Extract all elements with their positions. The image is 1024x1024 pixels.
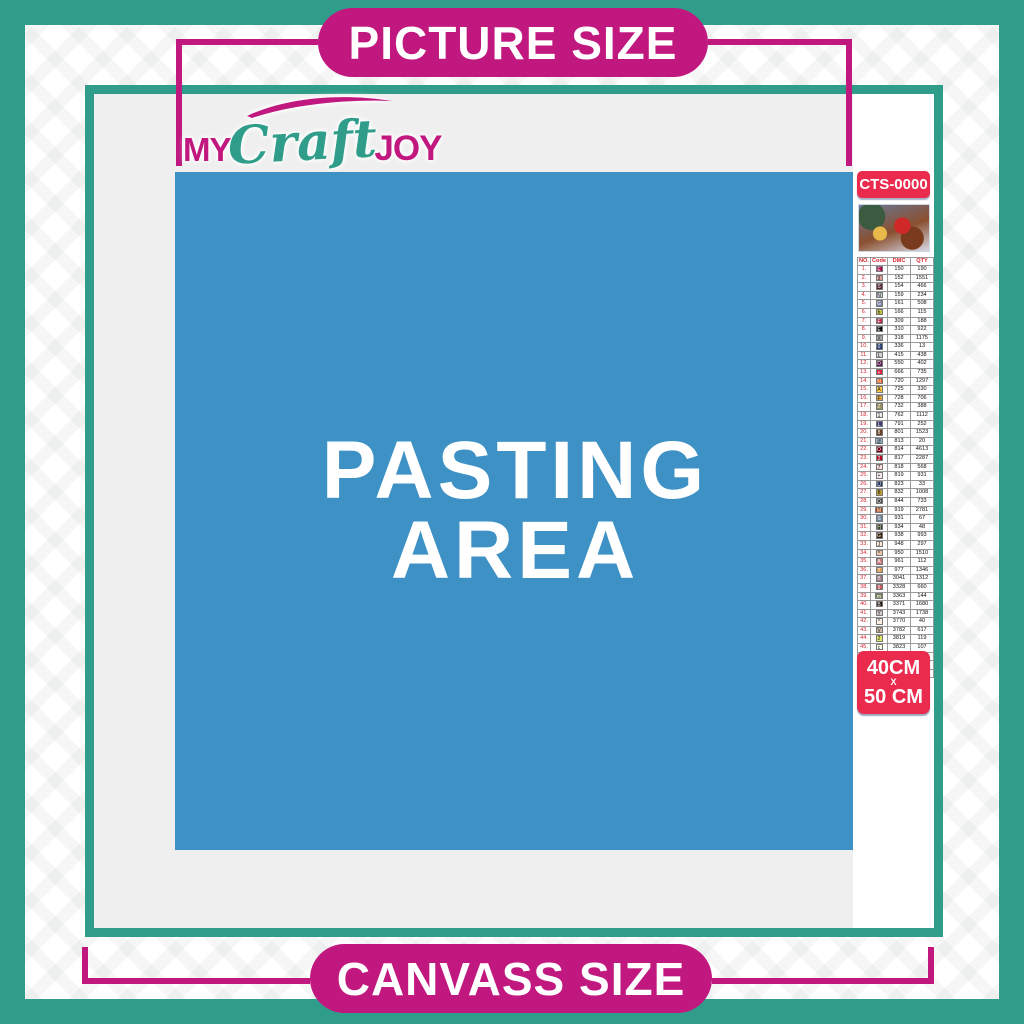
row-symbol-cell: @ bbox=[871, 437, 888, 446]
symbol-chip: B bbox=[876, 601, 883, 607]
row-number: 41. bbox=[858, 609, 871, 618]
row-symbol-cell: 0 bbox=[871, 343, 888, 352]
row-quantity: 115 bbox=[911, 308, 934, 317]
table-row: 32. G 938 993 bbox=[858, 532, 934, 541]
symbol-chip: B bbox=[876, 575, 883, 581]
table-row: 35. A 961 112 bbox=[858, 558, 934, 567]
row-number: 37. bbox=[858, 575, 871, 584]
table-row: 16. F 728 706 bbox=[858, 394, 934, 403]
header-code: Code bbox=[871, 258, 888, 266]
row-dmc-code: 950 bbox=[888, 549, 911, 558]
row-dmc-code: 3328 bbox=[888, 583, 911, 592]
table-header-row: NO. Code DMC QTY bbox=[858, 258, 934, 266]
row-quantity: 733 bbox=[911, 497, 934, 506]
row-dmc-code: 732 bbox=[888, 403, 911, 412]
row-quantity: 617 bbox=[911, 626, 934, 635]
size-width: 40CM bbox=[867, 658, 920, 678]
canvass-size-banner: CANVASS SIZE bbox=[310, 944, 712, 1013]
table-row: 27. 8 832 1008 bbox=[858, 489, 934, 498]
row-number: 5. bbox=[858, 300, 871, 309]
row-number: 14. bbox=[858, 377, 871, 386]
table-row: 8. E 310 922 bbox=[858, 326, 934, 335]
table-row: 10. 0 336 13 bbox=[858, 343, 934, 352]
table-row: 25. + 819 931 bbox=[858, 472, 934, 481]
symbol-chip: 2 bbox=[876, 455, 883, 461]
row-symbol-cell: 8 bbox=[871, 489, 888, 498]
row-symbol-cell: L bbox=[871, 420, 888, 429]
row-number: 39. bbox=[858, 592, 871, 601]
row-quantity: 1112 bbox=[911, 412, 934, 421]
row-quantity: 1297 bbox=[911, 377, 934, 386]
brand-logo: MY Craft JOY bbox=[183, 96, 398, 170]
row-number: 33. bbox=[858, 540, 871, 549]
size-height: 50 CM bbox=[864, 687, 923, 707]
row-dmc-code: 3770 bbox=[888, 618, 911, 627]
row-dmc-code: 948 bbox=[888, 540, 911, 549]
bottom-left-bracket-horizontal bbox=[82, 978, 310, 984]
row-quantity: 48 bbox=[911, 523, 934, 532]
symbol-chip: D bbox=[876, 360, 883, 366]
header-qty: QTY bbox=[911, 258, 934, 266]
row-dmc-code: 725 bbox=[888, 386, 911, 395]
table-row: 43. V 3782 617 bbox=[858, 626, 934, 635]
row-dmc-code: 3743 bbox=[888, 609, 911, 618]
table-row: 41. Y 3743 1738 bbox=[858, 609, 934, 618]
row-number: 44. bbox=[858, 635, 871, 644]
row-symbol-cell: 1 bbox=[871, 412, 888, 421]
symbol-chip: ^ bbox=[876, 618, 883, 624]
symbol-chip: m bbox=[875, 593, 882, 599]
row-symbol-cell: G bbox=[871, 532, 888, 541]
canvas-size-badge: 40CM X 50 CM bbox=[857, 651, 930, 714]
row-dmc-code: 152 bbox=[888, 274, 911, 283]
sku-badge: CTS-0000 bbox=[857, 171, 930, 198]
row-dmc-code: 934 bbox=[888, 523, 911, 532]
row-quantity: 20 bbox=[911, 437, 934, 446]
row-quantity: 1346 bbox=[911, 566, 934, 575]
symbol-chip: + bbox=[876, 472, 883, 478]
symbol-chip: U bbox=[876, 481, 883, 487]
symbol-chip: N bbox=[876, 378, 883, 384]
picture-size-label: PICTURE SIZE bbox=[349, 16, 678, 70]
row-symbol-cell: m bbox=[871, 592, 888, 601]
row-quantity: 388 bbox=[911, 403, 934, 412]
table-row: 7. F 309 188 bbox=[858, 317, 934, 326]
row-quantity: 1510 bbox=[911, 549, 934, 558]
symbol-chip: F bbox=[876, 318, 883, 324]
row-quantity: 922 bbox=[911, 326, 934, 335]
row-symbol-cell: ^ bbox=[871, 618, 888, 627]
row-symbol-cell: H bbox=[871, 523, 888, 532]
symbol-chip: E bbox=[876, 326, 883, 332]
row-number: 3. bbox=[858, 283, 871, 292]
table-row: 42. ^ 3770 40 bbox=[858, 618, 934, 627]
symbol-chip: A bbox=[876, 386, 883, 392]
row-quantity: 1008 bbox=[911, 489, 934, 498]
row-quantity: 660 bbox=[911, 583, 934, 592]
row-dmc-code: 762 bbox=[888, 412, 911, 421]
row-symbol-cell: V bbox=[871, 626, 888, 635]
table-row: 12. D 550 402 bbox=[858, 360, 934, 369]
row-symbol-cell: F bbox=[871, 394, 888, 403]
table-row: 18. 1 762 1112 bbox=[858, 412, 934, 421]
row-symbol-cell: + bbox=[871, 369, 888, 378]
table-row: 5. G 161 508 bbox=[858, 300, 934, 309]
row-dmc-code: 666 bbox=[888, 369, 911, 378]
table-row: 23. 2 817 2287 bbox=[858, 455, 934, 464]
row-quantity: 931 bbox=[911, 472, 934, 481]
row-symbol-cell: + bbox=[871, 472, 888, 481]
row-number: 6. bbox=[858, 308, 871, 317]
row-dmc-code: 161 bbox=[888, 300, 911, 309]
row-quantity: 67 bbox=[911, 515, 934, 524]
row-symbol-cell: N bbox=[871, 377, 888, 386]
row-number: 29. bbox=[858, 506, 871, 515]
symbol-chip: @ bbox=[875, 438, 883, 444]
symbol-chip: 8 bbox=[876, 489, 883, 495]
row-symbol-cell: J bbox=[871, 540, 888, 549]
table-row: 11. L 415 438 bbox=[858, 351, 934, 360]
row-number: 16. bbox=[858, 394, 871, 403]
table-row: 1. E 150 190 bbox=[858, 265, 934, 274]
symbol-chip: X bbox=[876, 335, 883, 341]
row-number: 31. bbox=[858, 523, 871, 532]
row-symbol-cell: 2 bbox=[871, 635, 888, 644]
row-dmc-code: 844 bbox=[888, 497, 911, 506]
symbol-chip: Y bbox=[876, 610, 883, 616]
row-symbol-cell: E bbox=[871, 326, 888, 335]
product-thumbnail-image bbox=[858, 204, 930, 252]
row-number: 9. bbox=[858, 334, 871, 343]
row-number: 35. bbox=[858, 558, 871, 567]
row-dmc-code: 159 bbox=[888, 291, 911, 300]
symbol-chip: O bbox=[876, 498, 883, 504]
row-number: 38. bbox=[858, 583, 871, 592]
row-number: 30. bbox=[858, 515, 871, 524]
table-row: 9. X 318 1175 bbox=[858, 334, 934, 343]
table-row: 28. O 844 733 bbox=[858, 497, 934, 506]
row-symbol-cell: D bbox=[871, 360, 888, 369]
row-quantity: 706 bbox=[911, 394, 934, 403]
symbol-chip: * bbox=[876, 550, 883, 556]
row-quantity: 1551 bbox=[911, 274, 934, 283]
row-dmc-code: 977 bbox=[888, 566, 911, 575]
row-dmc-code: 813 bbox=[888, 437, 911, 446]
row-symbol-cell: M bbox=[871, 506, 888, 515]
row-dmc-code: 3782 bbox=[888, 626, 911, 635]
symbol-chip: T bbox=[876, 567, 883, 573]
row-dmc-code: 818 bbox=[888, 463, 911, 472]
symbol-chip: F bbox=[876, 395, 883, 401]
row-number: 23. bbox=[858, 455, 871, 464]
logo-text-craft: Craft bbox=[227, 119, 378, 168]
row-symbol-cell: O bbox=[871, 497, 888, 506]
row-quantity: 144 bbox=[911, 592, 934, 601]
row-number: 8. bbox=[858, 326, 871, 335]
table-row: 36. T 977 1346 bbox=[858, 566, 934, 575]
row-number: 42. bbox=[858, 618, 871, 627]
row-quantity: 438 bbox=[911, 351, 934, 360]
row-quantity: 1680 bbox=[911, 601, 934, 610]
row-dmc-code: 550 bbox=[888, 360, 911, 369]
row-quantity: 4613 bbox=[911, 446, 934, 455]
row-dmc-code: 961 bbox=[888, 558, 911, 567]
row-number: 10. bbox=[858, 343, 871, 352]
symbol-chip: H bbox=[876, 524, 883, 530]
row-number: 26. bbox=[858, 480, 871, 489]
table-row: 33. J 948 297 bbox=[858, 540, 934, 549]
header-dmc: DMC bbox=[888, 258, 911, 266]
row-symbol-cell: S bbox=[871, 515, 888, 524]
row-quantity: 1175 bbox=[911, 334, 934, 343]
table-row: 20. 8 801 1523 bbox=[858, 429, 934, 438]
symbol-chip: S bbox=[876, 283, 883, 289]
row-symbol-cell: A bbox=[871, 558, 888, 567]
row-number: 28. bbox=[858, 497, 871, 506]
table-row: 4. N 159 234 bbox=[858, 291, 934, 300]
table-row: 24. 7 818 568 bbox=[858, 463, 934, 472]
symbol-chip: L bbox=[876, 421, 883, 427]
row-quantity: 252 bbox=[911, 420, 934, 429]
row-symbol-cell: L bbox=[871, 351, 888, 360]
top-right-bracket-horizontal bbox=[708, 39, 852, 45]
row-quantity: 2287 bbox=[911, 455, 934, 464]
table-row: 39. m 3363 144 bbox=[858, 592, 934, 601]
table-row: 44. 2 3819 119 bbox=[858, 635, 934, 644]
row-number: 43. bbox=[858, 626, 871, 635]
row-number: 21. bbox=[858, 437, 871, 446]
table-row: 40. B 3371 1680 bbox=[858, 601, 934, 610]
logo-text-joy: JOY bbox=[374, 131, 441, 166]
row-symbol-cell: h bbox=[871, 308, 888, 317]
table-row: 29. M 919 2781 bbox=[858, 506, 934, 515]
row-number: 11. bbox=[858, 351, 871, 360]
row-quantity: 112 bbox=[911, 558, 934, 567]
row-quantity: 1738 bbox=[911, 609, 934, 618]
row-symbol-cell: N bbox=[871, 291, 888, 300]
symbol-chip: 0 bbox=[876, 343, 883, 349]
table-row: 22. O 814 4613 bbox=[858, 446, 934, 455]
row-quantity: 330 bbox=[911, 386, 934, 395]
symbol-chip: N bbox=[876, 292, 883, 298]
row-symbol-cell: 3 bbox=[871, 274, 888, 283]
pasting-area: PASTING AREA bbox=[175, 172, 855, 850]
row-dmc-code: 3819 bbox=[888, 635, 911, 644]
table-row: 37. B 3041 1312 bbox=[858, 575, 934, 584]
symbol-chip: G bbox=[876, 532, 883, 538]
row-quantity: 568 bbox=[911, 463, 934, 472]
row-quantity: 13 bbox=[911, 343, 934, 352]
top-left-bracket-vertical bbox=[176, 39, 182, 166]
row-symbol-cell: 7 bbox=[871, 463, 888, 472]
row-symbol-cell: 2 bbox=[871, 455, 888, 464]
row-symbol-cell: T bbox=[871, 566, 888, 575]
dmc-color-table: NO. Code DMC QTY 1. E 150 190 2. 3 152 1… bbox=[857, 257, 934, 678]
table-row: 2. 3 152 1551 bbox=[858, 274, 934, 283]
row-number: 24. bbox=[858, 463, 871, 472]
row-number: 27. bbox=[858, 489, 871, 498]
header-no: NO. bbox=[858, 258, 871, 266]
row-number: 2. bbox=[858, 274, 871, 283]
row-number: 1. bbox=[858, 265, 871, 274]
table-row: 26. U 823 33 bbox=[858, 480, 934, 489]
row-dmc-code: 154 bbox=[888, 283, 911, 292]
symbol-chip: O bbox=[876, 446, 883, 452]
table-row: 21. @ 813 20 bbox=[858, 437, 934, 446]
row-quantity: 188 bbox=[911, 317, 934, 326]
pasting-area-line1: PASTING bbox=[322, 431, 708, 511]
logo-text-my: MY bbox=[183, 133, 231, 166]
row-quantity: 190 bbox=[911, 265, 934, 274]
symbol-chip: 1 bbox=[876, 412, 883, 418]
picture-size-banner: PICTURE SIZE bbox=[318, 8, 708, 77]
row-number: 36. bbox=[858, 566, 871, 575]
sku-code: CTS-0000 bbox=[859, 176, 927, 193]
row-number: 32. bbox=[858, 532, 871, 541]
row-symbol-cell: 9 bbox=[871, 583, 888, 592]
row-symbol-cell: 8 bbox=[871, 429, 888, 438]
symbol-chip: E bbox=[876, 266, 883, 272]
top-left-bracket-horizontal bbox=[176, 39, 318, 45]
row-quantity: 33 bbox=[911, 480, 934, 489]
symbol-chip: h bbox=[876, 309, 883, 315]
row-dmc-code: 3363 bbox=[888, 592, 911, 601]
table-row: 31. H 934 48 bbox=[858, 523, 934, 532]
row-quantity: 1523 bbox=[911, 429, 934, 438]
canvass-size-label: CANVASS SIZE bbox=[337, 952, 686, 1006]
row-number: 25. bbox=[858, 472, 871, 481]
row-number: 7. bbox=[858, 317, 871, 326]
symbol-chip: c bbox=[876, 644, 883, 650]
row-symbol-cell: Z bbox=[871, 403, 888, 412]
product-infographic: PICTURE SIZE CANVASS SIZE MY Craft JOY P… bbox=[0, 0, 1024, 1024]
row-number: 40. bbox=[858, 601, 871, 610]
row-dmc-code: 819 bbox=[888, 472, 911, 481]
row-dmc-code: 309 bbox=[888, 317, 911, 326]
row-dmc-code: 3371 bbox=[888, 601, 911, 610]
row-dmc-code: 919 bbox=[888, 506, 911, 515]
table-row: 13. + 666 735 bbox=[858, 369, 934, 378]
row-quantity: 508 bbox=[911, 300, 934, 309]
row-quantity: 297 bbox=[911, 540, 934, 549]
table-row: 14. N 720 1297 bbox=[858, 377, 934, 386]
symbol-chip: 3 bbox=[876, 275, 883, 281]
row-number: 12. bbox=[858, 360, 871, 369]
row-symbol-cell: X bbox=[871, 334, 888, 343]
row-dmc-code: 791 bbox=[888, 420, 911, 429]
row-dmc-code: 728 bbox=[888, 394, 911, 403]
top-right-bracket-vertical bbox=[846, 39, 852, 166]
symbol-chip: 2 bbox=[876, 635, 883, 641]
row-symbol-cell: A bbox=[871, 386, 888, 395]
row-quantity: 735 bbox=[911, 369, 934, 378]
row-dmc-code: 720 bbox=[888, 377, 911, 386]
row-number: 4. bbox=[858, 291, 871, 300]
row-quantity: 40 bbox=[911, 618, 934, 627]
symbol-chip: V bbox=[876, 627, 883, 633]
symbol-chip: Z bbox=[876, 403, 883, 409]
row-symbol-cell: B bbox=[871, 575, 888, 584]
row-quantity: 993 bbox=[911, 532, 934, 541]
row-dmc-code: 832 bbox=[888, 489, 911, 498]
row-dmc-code: 310 bbox=[888, 326, 911, 335]
symbol-chip: S bbox=[876, 515, 883, 521]
row-dmc-code: 336 bbox=[888, 343, 911, 352]
table-row: 34. * 950 1510 bbox=[858, 549, 934, 558]
table-row: 15. A 725 330 bbox=[858, 386, 934, 395]
row-symbol-cell: O bbox=[871, 446, 888, 455]
row-dmc-code: 817 bbox=[888, 455, 911, 464]
symbol-chip: 7 bbox=[876, 464, 883, 470]
row-number: 17. bbox=[858, 403, 871, 412]
table-row: 17. Z 732 388 bbox=[858, 403, 934, 412]
row-symbol-cell: G bbox=[871, 300, 888, 309]
row-dmc-code: 3041 bbox=[888, 575, 911, 584]
row-number: 22. bbox=[858, 446, 871, 455]
row-dmc-code: 931 bbox=[888, 515, 911, 524]
row-dmc-code: 415 bbox=[888, 351, 911, 360]
table-row: 6. h 166 115 bbox=[858, 308, 934, 317]
pasting-area-line2: AREA bbox=[391, 511, 639, 591]
row-quantity: 1312 bbox=[911, 575, 934, 584]
row-quantity: 466 bbox=[911, 283, 934, 292]
row-dmc-code: 814 bbox=[888, 446, 911, 455]
symbol-chip: J bbox=[876, 541, 883, 547]
row-quantity: 119 bbox=[911, 635, 934, 644]
row-quantity: 2781 bbox=[911, 506, 934, 515]
row-symbol-cell: S bbox=[871, 283, 888, 292]
bottom-right-bracket-horizontal bbox=[712, 978, 934, 984]
row-quantity: 402 bbox=[911, 360, 934, 369]
symbol-chip: + bbox=[876, 369, 883, 375]
symbol-chip: A bbox=[876, 558, 883, 564]
row-dmc-code: 938 bbox=[888, 532, 911, 541]
row-dmc-code: 801 bbox=[888, 429, 911, 438]
row-symbol-cell: Y bbox=[871, 609, 888, 618]
row-symbol-cell: U bbox=[871, 480, 888, 489]
row-number: 19. bbox=[858, 420, 871, 429]
row-symbol-cell: F bbox=[871, 317, 888, 326]
symbol-chip: G bbox=[876, 300, 883, 306]
table-row: 30. S 931 67 bbox=[858, 515, 934, 524]
row-number: 20. bbox=[858, 429, 871, 438]
row-number: 13. bbox=[858, 369, 871, 378]
symbol-chip: 9 bbox=[876, 584, 883, 590]
legend-sidebar: CTS-0000 NO. Code DMC QTY 1. E 150 190 2… bbox=[853, 94, 934, 928]
table-row: 3. S 154 466 bbox=[858, 283, 934, 292]
symbol-chip: L bbox=[876, 352, 883, 358]
color-table-body: 1. E 150 190 2. 3 152 1551 3. S 154 466 … bbox=[858, 265, 934, 678]
row-dmc-code: 166 bbox=[888, 308, 911, 317]
row-symbol-cell: * bbox=[871, 549, 888, 558]
row-number: 18. bbox=[858, 412, 871, 421]
symbol-chip: M bbox=[875, 507, 882, 513]
symbol-chip: 8 bbox=[876, 429, 883, 435]
row-dmc-code: 150 bbox=[888, 265, 911, 274]
row-symbol-cell: B bbox=[871, 601, 888, 610]
row-dmc-code: 823 bbox=[888, 480, 911, 489]
table-row: 38. 9 3328 660 bbox=[858, 583, 934, 592]
row-symbol-cell: E bbox=[871, 265, 888, 274]
row-dmc-code: 318 bbox=[888, 334, 911, 343]
row-number: 15. bbox=[858, 386, 871, 395]
table-row: 19. L 791 252 bbox=[858, 420, 934, 429]
row-quantity: 234 bbox=[911, 291, 934, 300]
row-number: 34. bbox=[858, 549, 871, 558]
